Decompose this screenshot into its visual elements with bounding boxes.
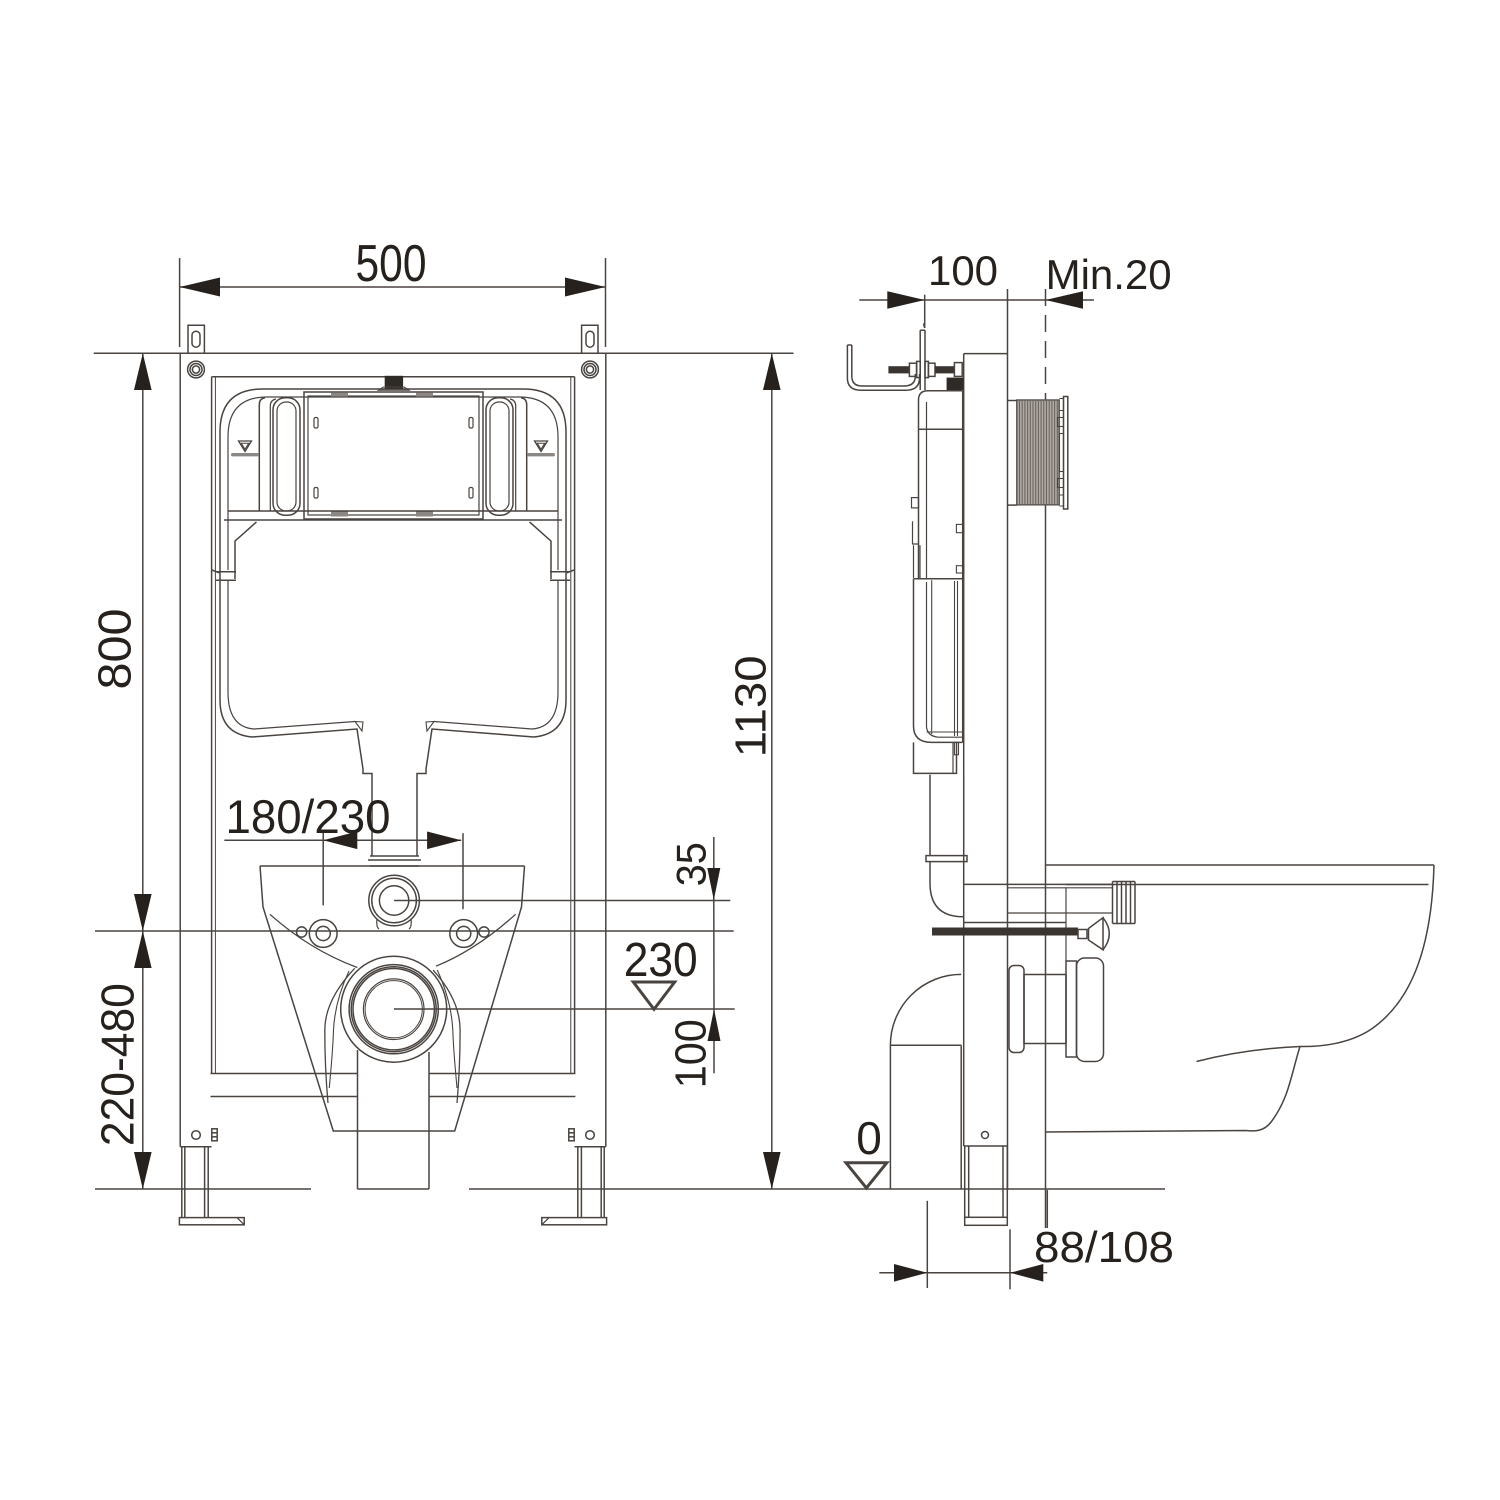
- svg-text:100: 100: [928, 247, 998, 294]
- svg-text:0: 0: [856, 1112, 882, 1164]
- svg-text:Min.20: Min.20: [1046, 251, 1172, 298]
- svg-text:230: 230: [624, 934, 698, 987]
- svg-text:220-480: 220-480: [92, 983, 144, 1146]
- svg-text:35: 35: [667, 842, 714, 886]
- svg-text:180/230: 180/230: [226, 790, 391, 843]
- svg-text:1130: 1130: [727, 655, 776, 757]
- svg-text:500: 500: [356, 235, 427, 293]
- svg-text:800: 800: [89, 609, 141, 690]
- svg-text:88/108: 88/108: [1034, 1223, 1174, 1272]
- svg-text:100: 100: [666, 1019, 715, 1088]
